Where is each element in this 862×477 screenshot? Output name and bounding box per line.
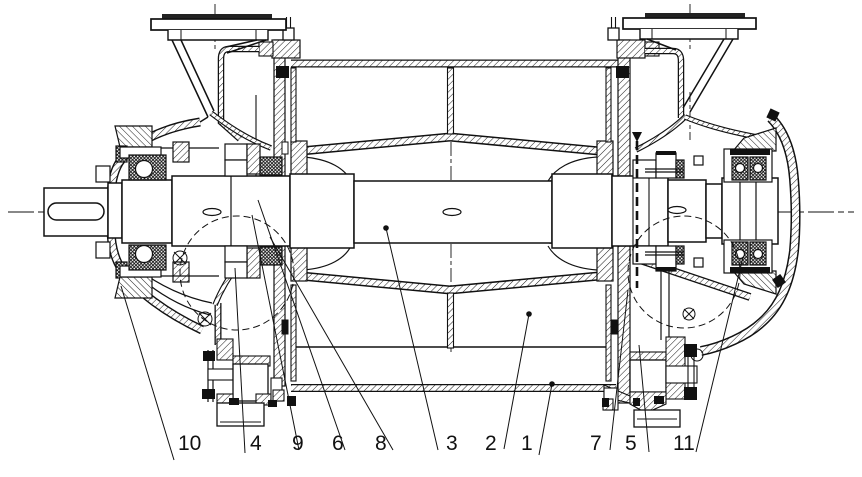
svg-text:1: 1 — [521, 432, 533, 455]
svg-text:3: 3 — [446, 432, 458, 455]
svg-text:7: 7 — [590, 432, 602, 455]
svg-text:10: 10 — [178, 432, 201, 455]
svg-text:4: 4 — [250, 432, 262, 455]
svg-text:9: 9 — [292, 432, 304, 455]
svg-text:11: 11 — [673, 432, 695, 455]
svg-text:8: 8 — [375, 432, 387, 455]
svg-text:5: 5 — [625, 432, 637, 455]
svg-text:6: 6 — [332, 432, 344, 455]
svg-text:2: 2 — [485, 432, 497, 455]
